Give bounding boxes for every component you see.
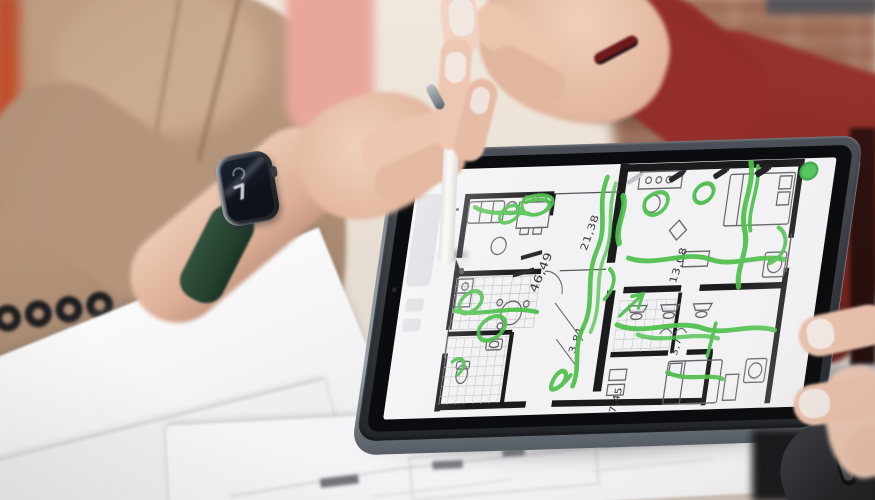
- watch-reflection: [223, 154, 276, 198]
- front-camera-icon: [391, 287, 397, 292]
- fingernail: [448, 0, 476, 37]
- shelf-edge: [766, 0, 875, 14]
- smartwatch: 7: [213, 149, 281, 229]
- pencil-tool-icon: [626, 171, 645, 185]
- sidebar-swatch: [402, 318, 422, 332]
- ink-tool-icon: [712, 164, 732, 180]
- sidebar-swatch: [405, 298, 425, 312]
- photo-scene: 21,38 46,49 3,81 13,08 3,7 7,45: [0, 0, 875, 500]
- chain-link: [23, 299, 53, 329]
- stylus-speck: [456, 208, 459, 211]
- tablet-bezel: 21,38 46,49 3,81 13,08 3,7 7,45: [366, 145, 853, 432]
- fingernail: [444, 51, 467, 83]
- dimension-label-3-7: 3,7: [669, 337, 684, 356]
- stylus-point: [459, 268, 464, 274]
- watch-screen: 7: [219, 154, 276, 222]
- pen-tool-icon: [668, 167, 688, 183]
- chain-link: [0, 303, 23, 333]
- marker-tool-icon: [754, 161, 774, 178]
- chain-link: [54, 294, 84, 324]
- dimension-label-13-08: 13,08: [667, 246, 690, 284]
